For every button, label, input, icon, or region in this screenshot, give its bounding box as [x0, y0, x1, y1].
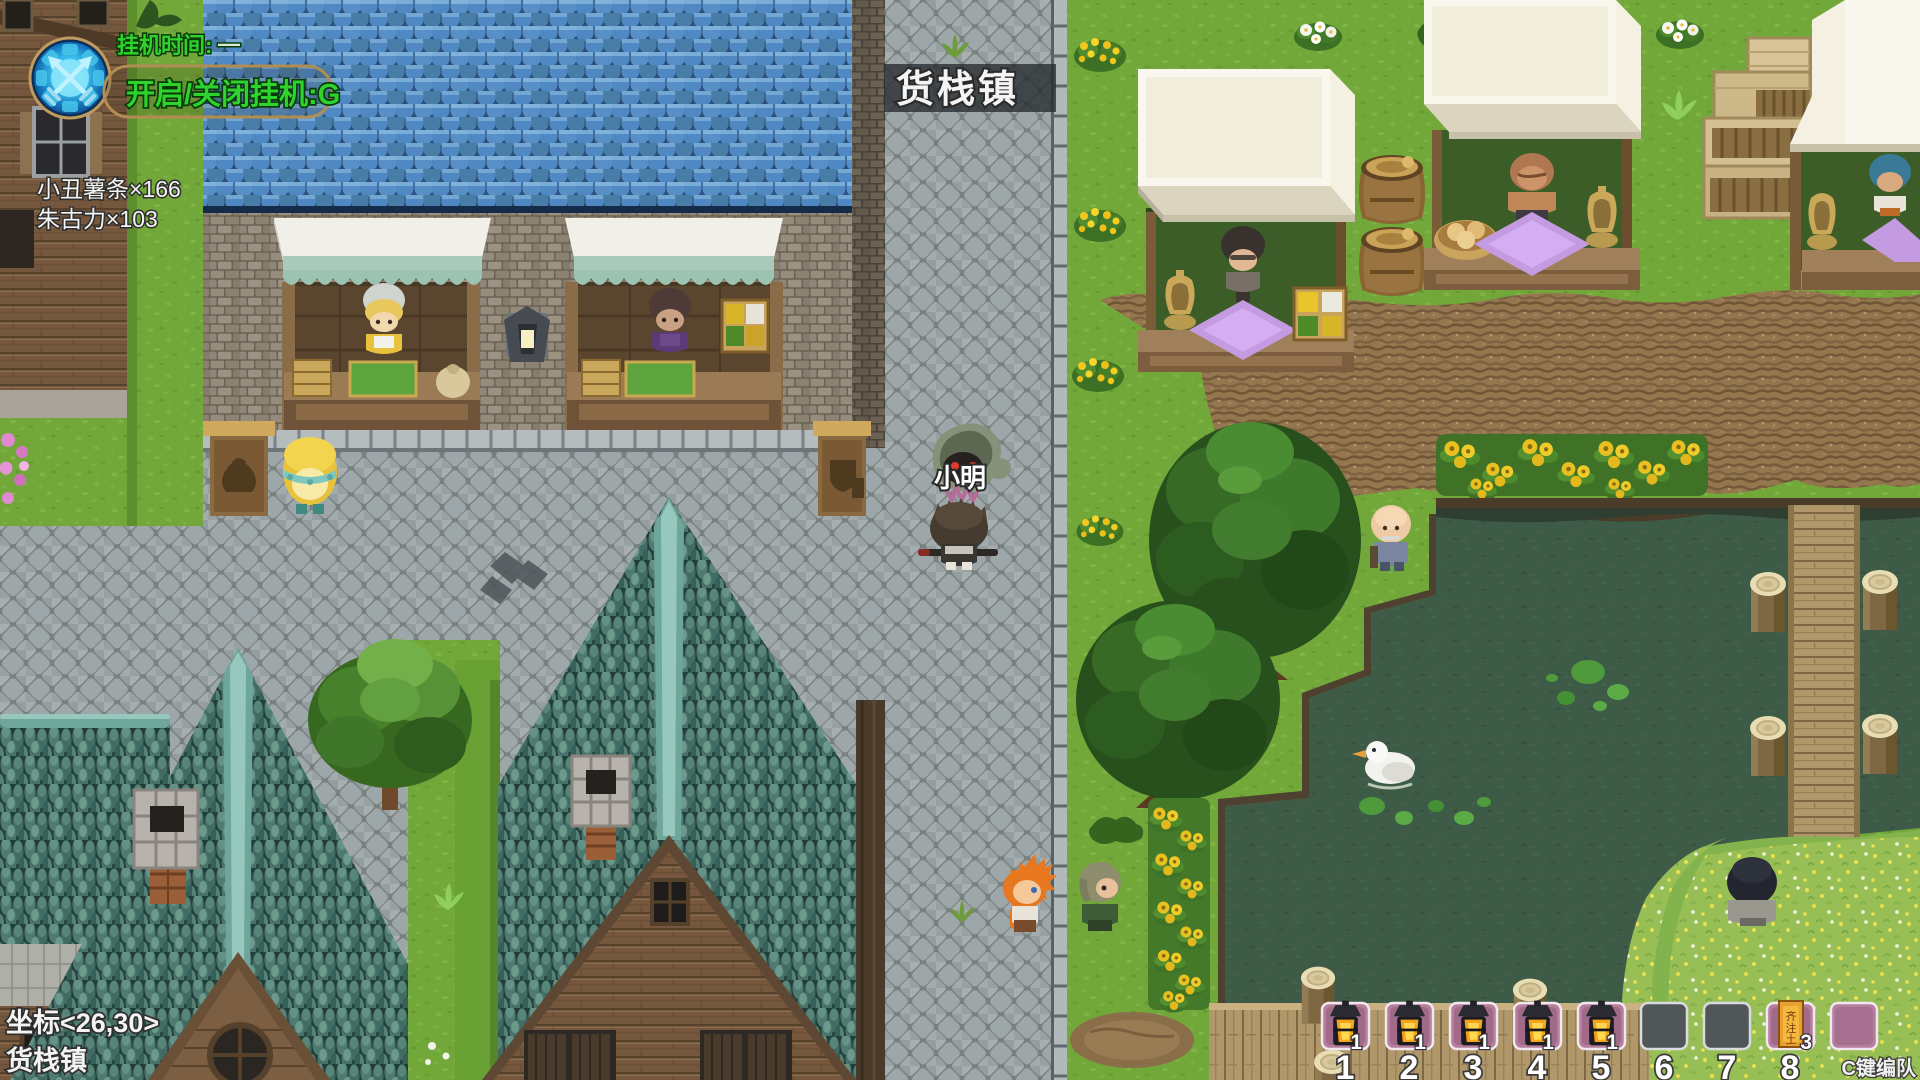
svg-text:6: 6 — [1655, 1049, 1674, 1080]
svg-text:开启/关闭挂机:G: 开启/关闭挂机:G — [126, 78, 340, 111]
svg-text:挂机时间:: 挂机时间: — [117, 33, 212, 58]
svg-text:4: 4 — [1528, 1049, 1547, 1080]
svg-text:小明: 小明 — [934, 463, 986, 493]
svg-text:C键编队: C键编队 — [1842, 1056, 1917, 1080]
svg-text:5: 5 — [1592, 1049, 1611, 1080]
svg-text:1: 1 — [1336, 1049, 1355, 1080]
svg-text:8: 8 — [1781, 1049, 1800, 1080]
svg-text:7: 7 — [1718, 1049, 1737, 1080]
svg-text:3: 3 — [1800, 1031, 1812, 1054]
svg-text:小丑薯条×166: 小丑薯条×166 — [37, 176, 181, 202]
svg-text:3: 3 — [1464, 1049, 1483, 1080]
svg-text:货栈镇: 货栈镇 — [6, 1045, 87, 1076]
svg-text:坐标<26,30>: 坐标<26,30> — [6, 1008, 159, 1038]
svg-text:—: — — [218, 31, 240, 56]
svg-text:齐: 齐 — [1786, 1009, 1797, 1023]
svg-text:货栈镇: 货栈镇 — [896, 69, 1019, 111]
svg-text:土: 土 — [1786, 1033, 1797, 1046]
svg-text:注: 注 — [1786, 1021, 1797, 1035]
svg-text:朱古力×103: 朱古力×103 — [37, 206, 158, 232]
svg-text:2: 2 — [1400, 1049, 1419, 1080]
